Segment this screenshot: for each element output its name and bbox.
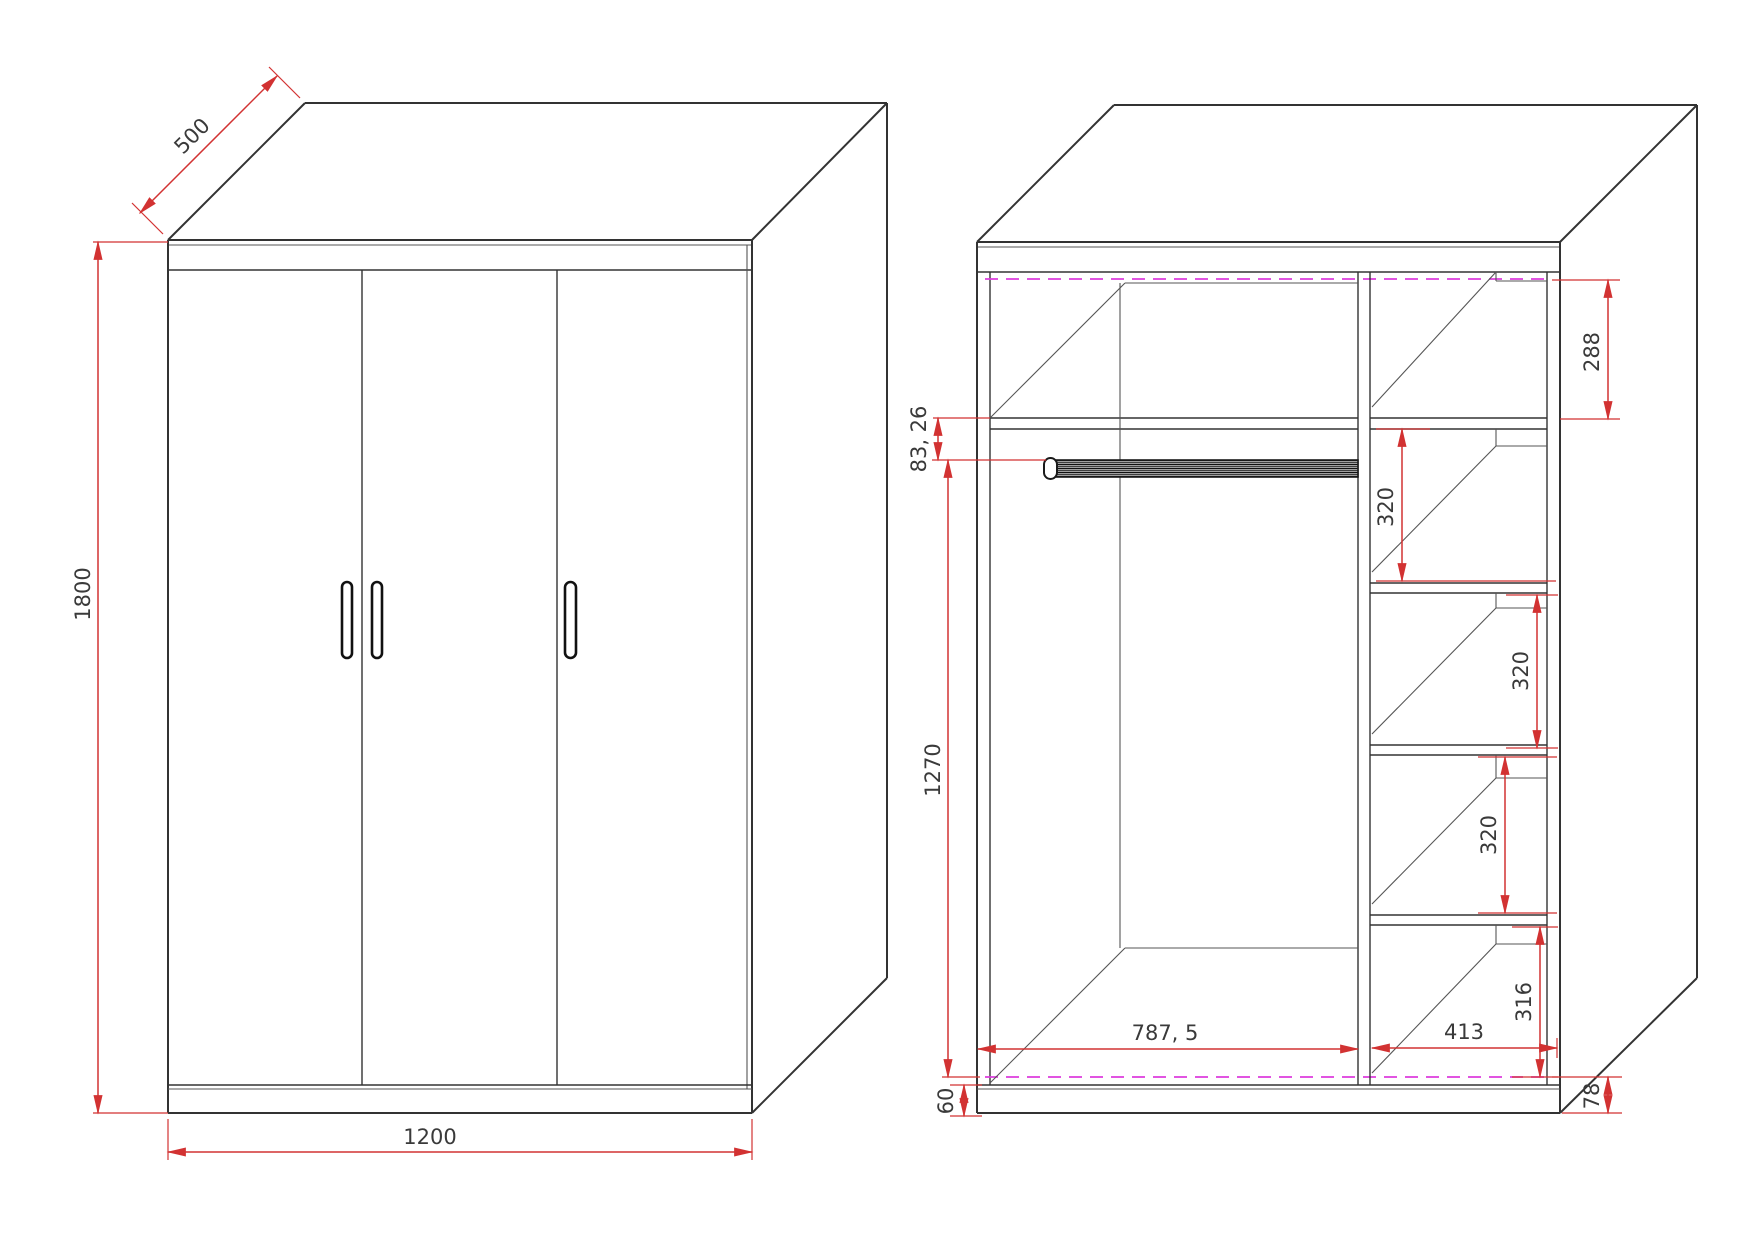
door-handle-left (342, 582, 352, 658)
dimension-right-section-width: 413 (1372, 1020, 1557, 1058)
dim-shelf-gap-1-label: 320 (1374, 487, 1398, 527)
dimension-width: 1200 (168, 1119, 752, 1160)
interior-view: 83, 26 1270 288 320 320 (907, 105, 1697, 1116)
dimension-shelf-gap-1: 320 (1374, 429, 1556, 581)
dimension-height: 1800 (71, 242, 168, 1113)
dimension-shelf-gap-3: 320 (1477, 757, 1557, 913)
door-handle-middle (372, 582, 382, 658)
hanging-rod (1044, 458, 1358, 479)
dim-depth-label: 500 (169, 113, 214, 158)
dimension-left-section-width: 787, 5 (978, 1021, 1358, 1049)
dim-bottom-compartment-label: 316 (1512, 982, 1536, 1022)
int-top-left-depth-edge (977, 105, 1114, 242)
dimension-depth: 500 (132, 67, 300, 234)
dimension-top-compartment: 288 (1552, 280, 1620, 419)
door-handle-right (565, 582, 576, 658)
dim-height-label: 1800 (71, 567, 95, 620)
dimension-hanging-height: 1270 (921, 460, 980, 1077)
dim-width-label: 1200 (403, 1125, 456, 1149)
left-floor-depth-diagonal (990, 948, 1125, 1083)
dim-top-compartment-label: 288 (1580, 332, 1604, 372)
dim-shelf-gap-2-label: 320 (1509, 651, 1533, 691)
front-top-right-depth-edge (752, 103, 887, 240)
front-view: 500 1800 1200 (71, 67, 887, 1160)
dimension-shelf-gap-2: 320 (1506, 595, 1558, 748)
dim-right-section-width-label: 413 (1444, 1020, 1484, 1044)
wardrobe-drawing: 500 1800 1200 (0, 0, 1755, 1241)
right-compartment-2-depth (1372, 429, 1547, 572)
right-compartment-1-depth (1372, 272, 1547, 407)
technical-drawing-canvas: 500 1800 1200 (0, 0, 1755, 1241)
int-top-right-depth-edge (1560, 105, 1697, 242)
hanging-rod-end-cap (1044, 458, 1057, 479)
left-top-compartment-depth-diagonal (990, 283, 1125, 418)
dim-hanging-height-label: 1270 (921, 743, 945, 796)
dim-left-section-width-label: 787, 5 (1132, 1021, 1199, 1045)
dim-plinth-left-label: 60 (934, 1088, 958, 1115)
front-bottom-right-depth-edge (752, 978, 887, 1113)
right-compartment-4-depth (1372, 755, 1547, 904)
dim-shelf-gap-3-label: 320 (1477, 815, 1501, 855)
dimension-bottom-compartment: 316 (1512, 927, 1558, 1077)
dim-plinth-right-label: 78 (1580, 1083, 1604, 1110)
dim-rod-offset-label: 83, 26 (907, 406, 931, 473)
dimension-plinth-right: 78 (1552, 1077, 1622, 1113)
dimension-plinth-left: 60 (934, 1085, 982, 1116)
